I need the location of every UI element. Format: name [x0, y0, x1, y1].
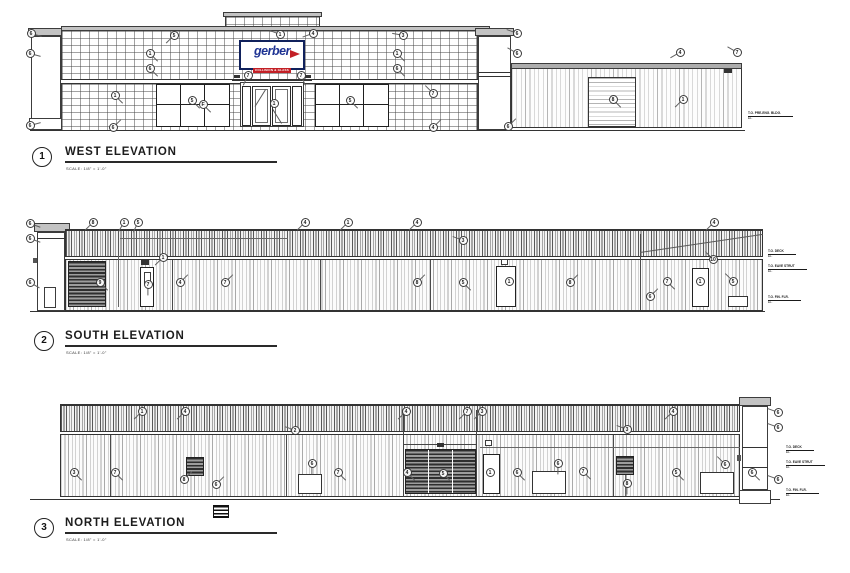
north-pad-left	[298, 474, 322, 494]
callout-bubble-1: 1	[505, 277, 514, 286]
callout-bubble-5: 5	[459, 278, 468, 287]
north-scale-note: SCALE: 1/8" = 1'-0"	[66, 537, 107, 542]
callout-bubble-F: F	[199, 100, 208, 109]
callout-bubble-4: 4	[710, 218, 719, 227]
north-ground-line	[30, 499, 780, 500]
elevation-sheet: gerber COLLISION & GLASS	[0, 0, 850, 573]
callout-bubble-7: 7	[297, 71, 306, 80]
north-tower	[742, 406, 768, 490]
north-louver-right	[616, 456, 634, 475]
callout-bubble-5: 5	[170, 31, 179, 40]
callout-bubble-6: 6	[774, 408, 783, 417]
callout-bubble-6: 6	[774, 475, 783, 484]
callout-bubble-1: 1	[159, 253, 168, 262]
north-detail-number: 3	[34, 518, 54, 538]
north-wall-base	[60, 496, 740, 497]
callout-bubble-1: 1	[120, 218, 129, 227]
callout-bubble-5: 5	[188, 96, 197, 105]
callout-bubble-3: 3	[623, 425, 632, 434]
callout-bubble-6: 6	[26, 278, 35, 287]
callout-bubble-6: 6	[27, 29, 36, 38]
north-tower-base	[739, 490, 771, 504]
callout-bubble-6: 6	[109, 123, 118, 132]
callout-bubble-7: 7	[579, 467, 588, 476]
north-girt-line	[480, 447, 740, 448]
callout-bubble-7: 7	[663, 277, 672, 286]
door-panel-joint	[428, 450, 429, 493]
callout-bubble-1: 1	[679, 95, 688, 104]
callout-bubble-10: 10	[709, 255, 718, 264]
callout-bubble-6: 6	[26, 49, 35, 58]
callout-bubble-6: 6	[513, 29, 522, 38]
north-panel-joint	[110, 435, 111, 496]
north-door-jamb-left	[403, 410, 404, 497]
north-tower-bracket	[737, 455, 741, 461]
callout-bubble-6: 6	[721, 460, 730, 469]
callout-bubble-5: 5	[439, 469, 448, 478]
callout-bubble-5: 5	[672, 468, 681, 477]
callout-bubble-6: 6	[393, 64, 402, 73]
north-pad-right	[700, 472, 734, 494]
callout-bubble-7: 7	[334, 468, 343, 477]
north-panel-joint	[613, 435, 614, 496]
callout-bubble-6: 6	[308, 459, 317, 468]
callout-bubble-7: 7	[244, 71, 253, 80]
callout-bubble-6: 6	[146, 64, 155, 73]
callout-bubble-8: 8	[609, 95, 618, 104]
callout-bubble-1: 1	[146, 49, 155, 58]
callout-bubble-4: 4	[413, 218, 422, 227]
callout-bubble-6: 6	[513, 468, 522, 477]
north-door-jamb-right	[476, 410, 477, 497]
north-lower-siding	[60, 435, 740, 496]
callout-bubble-7: 7	[733, 48, 742, 57]
callout-bubble-1: 1	[344, 218, 353, 227]
callout-bubble-3: 3	[399, 31, 408, 40]
callout-bubble-7: 7	[144, 280, 153, 289]
callout-bubble-6: 6	[774, 423, 783, 432]
callout-bubble-4: 4	[181, 407, 190, 416]
callout-bubble-5: 5	[134, 218, 143, 227]
callout-bubble-1: 1	[111, 91, 120, 100]
callout-bubble-7: 7	[429, 89, 438, 98]
door-panel-joint	[452, 450, 453, 493]
elevation-datum-marker: T.O. EAVE STRUTEL.	[786, 461, 825, 470]
callout-bubble-4: 4	[301, 218, 310, 227]
callout-bubble-1: 1	[696, 277, 705, 286]
callout-bubble-6: 6	[554, 459, 563, 468]
callout-bubble-8: 8	[566, 278, 575, 287]
north-tower-band	[742, 447, 768, 448]
callout-bubble-1: 1	[486, 468, 495, 477]
callout-bubble-8: 8	[413, 278, 422, 287]
callout-bubble-4: 4	[429, 123, 438, 132]
callout-bubble-3: 3	[478, 407, 487, 416]
callout-bubble-4: 4	[402, 407, 411, 416]
callout-bubble-6: 6	[26, 219, 35, 228]
elevation-datum-marker: T.O. DECKEL.	[786, 446, 814, 455]
callout-bubble-1: 1	[276, 30, 285, 39]
north-upper-panel-band	[60, 406, 740, 431]
callout-bubble-7: 7	[463, 407, 472, 416]
callout-bubble-4: 4	[676, 48, 685, 57]
callout-bubble-6: 6	[646, 292, 655, 301]
callout-bubble-5: 5	[729, 277, 738, 286]
north-door-hood	[485, 440, 492, 446]
callout-bubble-6: 6	[504, 122, 513, 131]
callout-bubble-5: 5	[346, 96, 355, 105]
callout-bubble-3: 3	[70, 468, 79, 477]
north-elevation: 3 NORTH ELEVATION SCALE: 1/8" = 1'-0" 14…	[0, 0, 850, 573]
north-pad-center	[532, 471, 566, 494]
callout-bubble-3: 3	[459, 236, 468, 245]
callout-bubble-1: 1	[270, 99, 279, 108]
callout-bubble-4: 4	[309, 29, 318, 38]
north-tower-cap	[739, 397, 771, 406]
callout-bubble-8: 8	[180, 475, 189, 484]
callout-bubble-6: 6	[212, 480, 221, 489]
callout-bubble-6: 6	[748, 468, 757, 477]
callout-bubble-6: 6	[26, 234, 35, 243]
callout-bubble-4: 4	[176, 278, 185, 287]
north-door-operator	[437, 443, 444, 447]
callout-bubble-4: 4	[669, 407, 678, 416]
callout-bubble-8: 8	[89, 218, 98, 227]
callout-bubble-6: 6	[513, 49, 522, 58]
callout-bubble-8: 8	[623, 479, 632, 488]
callout-bubble-2: 2	[291, 426, 300, 435]
north-title: NORTH ELEVATION	[65, 517, 277, 534]
callout-bubble-9: 9	[96, 278, 105, 287]
elevation-datum-marker: T.O. FIN. FLR.EL.	[786, 489, 819, 498]
callout-bubble-7: 7	[111, 468, 120, 477]
callout-bubble-7: 7	[221, 278, 230, 287]
callout-bubble-6: 6	[26, 121, 35, 130]
callout-bubble-4: 4	[403, 468, 412, 477]
north-panel-joint	[286, 435, 287, 496]
callout-bubble-1: 1	[393, 49, 402, 58]
callout-bubble-1: 1	[138, 407, 147, 416]
north-rail-top	[60, 431, 740, 432]
